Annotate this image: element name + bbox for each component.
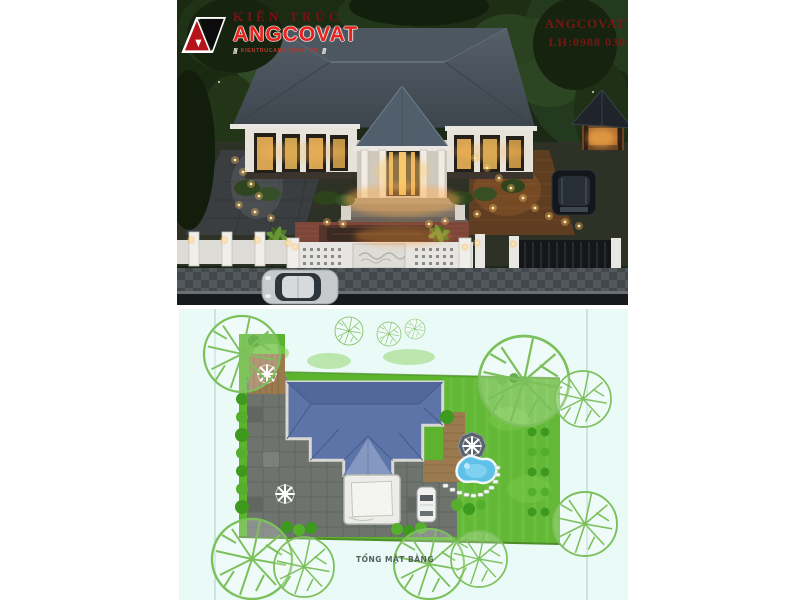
slash-right: /// [322,48,326,56]
contact-brand-text: ANGCOVAT [545,16,626,32]
site-plan-title: TỔNG MẶT BẰNG [356,554,434,564]
parking-car [417,487,436,522]
sidewalk [177,268,628,294]
slash-left: /// [233,48,237,56]
contact-watermark: ANGCOVAT LH:0988 030 [545,16,626,50]
brand-sub-line: /// KIENTRUCANGCOVAT.VN /// [233,48,358,56]
road [177,294,628,305]
brand-site-text: KIENTRUCANGCOVAT.VN [241,49,318,55]
angcovat-logo-icon [180,10,226,60]
silver-car [262,270,338,304]
brand-watermark: KIẾN TRÚC ANGCOVAT /// KIENTRUCANGCOVAT.… [180,10,358,60]
site-plan-art: TỔNG MẶT BẰNG [179,309,628,600]
site-plan: TỔNG MẶT BẰNG [179,309,628,600]
contact-phone-text: LH:0988 030 [545,35,626,50]
brand-text: KIẾN TRÚC ANGCOVAT /// KIENTRUCANGCOVAT.… [233,10,358,56]
relief-panel [353,244,405,268]
gazebo-parasol-icon [463,437,481,455]
brand-main-text: ANGCOVAT [233,24,358,46]
house-roof-plan [287,382,443,475]
front-courtyard-pad [344,475,400,524]
poster-canvas: KIẾN TRÚC ANGCOVAT /// KIENTRUCANGCOVAT.… [0,0,800,600]
umbrella-icon-paving [276,485,294,503]
swimming-pool [457,456,497,483]
dark-suv [552,170,596,215]
exterior-render: KIẾN TRÚC ANGCOVAT /// KIENTRUCANGCOVAT.… [177,0,628,305]
brand-top-text: KIẾN TRÚC [233,10,358,24]
